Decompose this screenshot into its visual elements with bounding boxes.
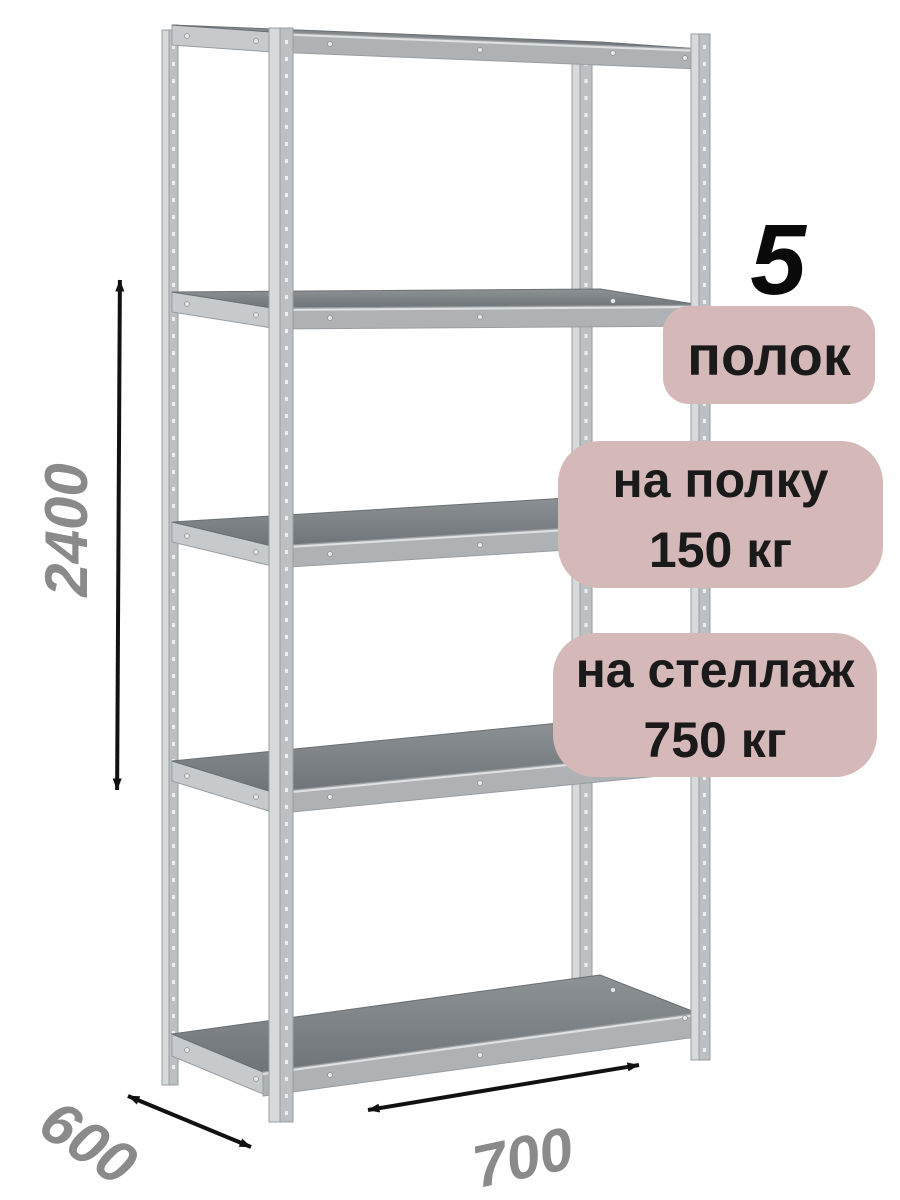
rack-shelf-5 — [172, 975, 697, 1096]
rack-load-badge: на стеллаж 750 кг — [553, 633, 877, 777]
rack-load-line2: 750 кг — [643, 705, 786, 775]
product-image: 5 полок на полку 150 кг на стеллаж 750 к… — [0, 0, 900, 1200]
rack-load-line1: на стеллаж — [576, 635, 855, 705]
shelf-load-line1: на полку — [613, 445, 829, 515]
rack-shelf-1 — [172, 25, 700, 69]
rack-post-back-left — [162, 30, 178, 1085]
shelf-count-number: 5 — [733, 210, 823, 310]
rack-post-front-left — [269, 28, 293, 1122]
rack-shelf-2 — [172, 289, 700, 329]
height-dimension-label: 2400 — [32, 420, 102, 640]
shelf-load-line2: 150 кг — [649, 515, 792, 585]
shelving-rack-illustration — [0, 0, 900, 1200]
height-dimension-arrow — [117, 280, 120, 790]
shelf-count-label: полок — [687, 323, 851, 388]
shelf-load-badge: на полку 150 кг — [558, 441, 883, 588]
shelf-count-badge: полок — [663, 306, 875, 404]
